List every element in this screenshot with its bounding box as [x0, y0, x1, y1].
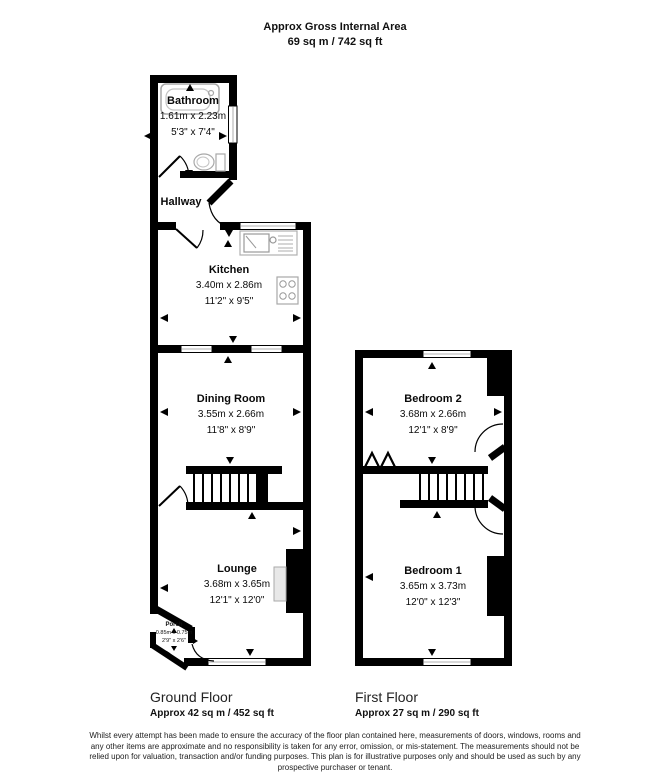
- room-dim-imperial: 5'3" x 7'4": [160, 125, 226, 141]
- room-name: Bedroom 2: [400, 391, 466, 407]
- bedroom2-label: Bedroom 2 3.68m x 2.66m 12'1" x 8'9": [400, 391, 466, 439]
- room-name: Kitchen: [196, 262, 262, 278]
- window-bedroom1: [423, 659, 471, 666]
- dining-room-label: Dining Room 3.55m x 2.66m 11'8" x 8'9": [197, 391, 265, 439]
- measure-arrow-left-icon: [365, 573, 373, 581]
- room-dim-metric: 3.68m x 2.66m: [400, 407, 466, 423]
- floor-area: Approx 42 sq m / 452 sq ft: [150, 706, 274, 721]
- first-floor-caption: First Floor Approx 27 sq m / 290 sq ft: [355, 688, 479, 721]
- room-dim-imperial: 11'8" x 8'9": [197, 423, 265, 439]
- fireplace-icon: [274, 567, 286, 601]
- disclaimer-line: prospective purchaser or tenant.: [0, 763, 670, 774]
- wall-right: [303, 222, 311, 666]
- chimney-breast-lounge: [286, 549, 303, 613]
- toilet-icon: [194, 154, 225, 171]
- wall-landing-angled-bottom: [490, 498, 505, 509]
- floorplan-page: Approx Gross Internal Area 69 sq m / 742…: [0, 0, 670, 781]
- wall-left: [355, 350, 363, 666]
- page-title: Approx Gross Internal Area 69 sq m / 742…: [263, 20, 406, 50]
- measure-arrow-left-icon: [160, 584, 168, 592]
- room-dim-metric: 3.65m x 3.73m: [400, 579, 466, 595]
- hob-icon: [277, 277, 298, 304]
- porch-label: Porch 0.85m x 0.75m 2'9" x 2'6": [156, 621, 192, 645]
- window-kitchen: [240, 223, 296, 230]
- hallway-label: Hallway: [161, 194, 202, 210]
- wall-hallway-bottom: [158, 222, 176, 230]
- floor-name: First Floor: [355, 688, 479, 706]
- window-dining-left: [181, 346, 212, 353]
- measure-arrow-right-icon: [193, 638, 198, 644]
- room-dim-metric: 3.40m x 2.86m: [196, 278, 262, 294]
- window-lounge: [208, 659, 266, 666]
- stairs-side-block: [258, 474, 268, 502]
- wall-kitchen-dining: [150, 345, 311, 353]
- floor-area: Approx 27 sq m / 290 sq ft: [355, 706, 479, 721]
- room-name: Lounge: [204, 561, 270, 577]
- wall-left: [150, 75, 158, 614]
- floorplan-drawing: [0, 0, 670, 781]
- chimney-breast-bedroom1: [487, 556, 504, 616]
- measure-arrow-left-icon: [160, 314, 168, 322]
- room-name: Bathroom: [160, 93, 226, 109]
- measure-arrow-left-icon: [160, 408, 168, 416]
- bedroom1-label: Bedroom 1 3.65m x 3.73m 12'0" x 12'3": [400, 563, 466, 611]
- chimney-breast-bedroom2: [487, 358, 504, 396]
- room-dim-imperial: 12'1" x 8'9": [400, 423, 466, 439]
- window-dining-right: [251, 346, 282, 353]
- measure-arrow-left-icon: [144, 132, 152, 140]
- kitchen-label: Kitchen 3.40m x 2.86m 11'2" x 9'5": [196, 262, 262, 310]
- room-dim-metric: 3.55m x 2.66m: [197, 407, 265, 423]
- window-bedroom2: [423, 351, 471, 358]
- measure-arrow-down-icon: [171, 646, 177, 651]
- measure-arrow-up-icon: [248, 512, 256, 519]
- room-dim-imperial: 12'0" x 12'3": [400, 595, 466, 611]
- measure-arrow-down-icon: [226, 457, 234, 464]
- lounge-door: [159, 486, 188, 507]
- room-dim-imperial: 11'2" x 9'5": [196, 294, 262, 310]
- bedroom1-door: [475, 506, 503, 534]
- measure-arrow-right-icon: [293, 408, 301, 416]
- room-name: Porch: [156, 621, 192, 629]
- first-floor-stairs: [420, 474, 483, 500]
- measure-arrow-right-icon: [293, 314, 301, 322]
- room-dim-imperial: 2'9" x 2'6": [156, 637, 192, 645]
- room-name: Hallway: [161, 194, 202, 210]
- measure-arrow-right-icon: [494, 408, 502, 416]
- lounge-label: Lounge 3.68m x 3.65m 12'1" x 12'0": [204, 561, 270, 609]
- measure-arrow-down-icon: [225, 230, 233, 237]
- wall-stairs-top: [186, 466, 282, 474]
- measure-arrow-down-icon: [428, 649, 436, 656]
- ground-floor-caption: Ground Floor Approx 42 sq m / 452 sq ft: [150, 688, 274, 721]
- wall-hallway-angled: [209, 181, 231, 203]
- measure-arrow-up-icon: [428, 362, 436, 369]
- room-dim-imperial: 12'1" x 12'0": [204, 593, 270, 609]
- floor-name: Ground Floor: [150, 688, 274, 706]
- disclaimer-text: Whilst every attempt has been made to en…: [0, 731, 670, 773]
- room-dim-metric: 0.85m x 0.75m: [156, 629, 192, 637]
- bathroom-label: Bathroom 1.61m x 2.23m 5'3" x 7'4": [160, 93, 226, 141]
- measure-arrow-up-icon: [224, 356, 232, 363]
- room-name: Dining Room: [197, 391, 265, 407]
- wall-porch-lower-diagonal: [152, 645, 187, 668]
- measure-arrow-left-icon: [365, 408, 373, 416]
- room-dim-metric: 3.68m x 3.65m: [204, 577, 270, 593]
- measure-arrow-down-icon: [246, 649, 254, 656]
- kitchen-sink-icon: [240, 231, 297, 255]
- disclaimer-line: Whilst every attempt has been made to en…: [0, 731, 670, 742]
- wall-stairs-bottom: [186, 502, 305, 510]
- disclaimer-line: any other items are approximate and no r…: [0, 742, 670, 753]
- measure-arrow-right-icon: [293, 527, 301, 535]
- measure-arrow-down-icon: [229, 336, 237, 343]
- title-line1: Approx Gross Internal Area: [263, 20, 406, 35]
- wall-top: [150, 75, 237, 83]
- measure-arrow-up-icon: [224, 240, 232, 247]
- disclaimer-line: relied upon for valuation, transaction a…: [0, 752, 670, 763]
- window-bathroom: [229, 106, 238, 143]
- room-name: Bedroom 1: [400, 563, 466, 579]
- measure-arrow-up-icon: [433, 511, 441, 518]
- wall-landing-angled-top: [490, 447, 505, 458]
- title-line2: 69 sq m / 742 sq ft: [263, 35, 406, 50]
- room-dim-metric: 1.61m x 2.23m: [160, 109, 226, 125]
- ground-floor-stairs: [194, 474, 257, 502]
- measure-arrow-down-icon: [428, 457, 436, 464]
